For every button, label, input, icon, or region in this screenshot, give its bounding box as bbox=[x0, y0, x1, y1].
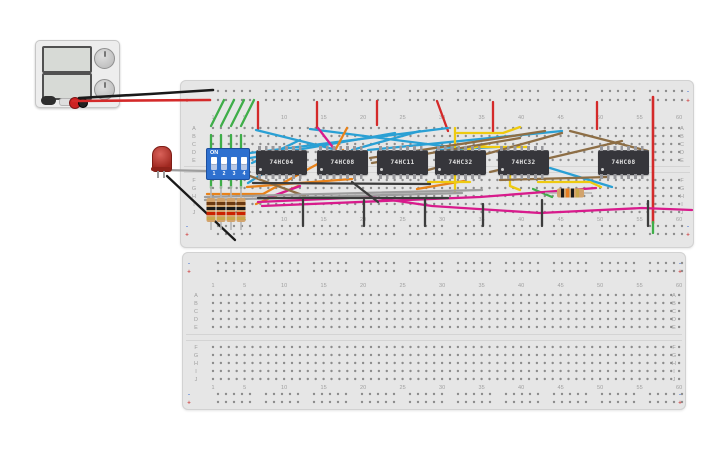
dip-slider-2[interactable] bbox=[221, 157, 227, 170]
voltage-knob[interactable] bbox=[94, 48, 115, 69]
ic-label: 74HC11 bbox=[390, 159, 414, 166]
dip-number: 2 bbox=[221, 171, 227, 177]
pin1-dot bbox=[438, 168, 441, 171]
dip-slider-1[interactable] bbox=[211, 157, 217, 170]
circuit-canvas: 1155101015152020252530303535404045455050… bbox=[0, 0, 725, 453]
pin1-dot bbox=[259, 168, 262, 171]
pin1-dot bbox=[320, 168, 323, 171]
negative-terminal[interactable] bbox=[78, 98, 88, 108]
dip-knob[interactable] bbox=[211, 157, 217, 164]
ic-chip-4[interactable]: 74HC32 bbox=[435, 150, 486, 175]
ic-label: 74HC32 bbox=[511, 159, 535, 166]
dip-knob[interactable] bbox=[231, 157, 237, 164]
ic-chip-5[interactable]: 74HC32 bbox=[498, 150, 549, 175]
center-channel bbox=[186, 340, 682, 341]
dip-knob[interactable] bbox=[221, 157, 227, 164]
ic-label: 74HC32 bbox=[448, 159, 472, 166]
pin1-dot bbox=[601, 168, 604, 171]
dip-slider-3[interactable] bbox=[231, 157, 237, 170]
dip-number: 3 bbox=[231, 171, 237, 177]
current-knob[interactable] bbox=[94, 79, 115, 100]
dip-number: 4 bbox=[241, 171, 247, 177]
ic-label: 74HC08 bbox=[611, 159, 635, 166]
power-button[interactable] bbox=[41, 96, 56, 105]
dip-knob[interactable] bbox=[241, 157, 247, 164]
power-supply[interactable] bbox=[35, 40, 120, 108]
led-flange bbox=[151, 167, 171, 171]
voltage-display bbox=[42, 46, 92, 73]
ic-label: 74HC08 bbox=[330, 159, 354, 166]
dip-switch[interactable]: ON 1 2 3 4 bbox=[206, 148, 250, 180]
ic-chip-2[interactable]: 74HC08 bbox=[317, 150, 368, 175]
center-channel bbox=[186, 334, 682, 335]
ic-chip-1[interactable]: 74HC04 bbox=[256, 150, 307, 175]
led[interactable] bbox=[151, 146, 171, 180]
ic-chip-6[interactable]: 74HC08 bbox=[598, 150, 649, 175]
led-leg bbox=[157, 171, 159, 178]
dip-slider-4[interactable] bbox=[241, 157, 247, 170]
ic-label: 74HC04 bbox=[269, 159, 293, 166]
dip-number: 1 bbox=[211, 171, 217, 177]
ic-chip-3[interactable]: 74HC11 bbox=[377, 150, 428, 175]
pin1-dot bbox=[380, 168, 383, 171]
breadboard-bottom[interactable] bbox=[182, 252, 686, 410]
pin1-dot bbox=[501, 168, 504, 171]
led-leg bbox=[163, 171, 165, 178]
dip-on-label: ON bbox=[210, 150, 218, 156]
